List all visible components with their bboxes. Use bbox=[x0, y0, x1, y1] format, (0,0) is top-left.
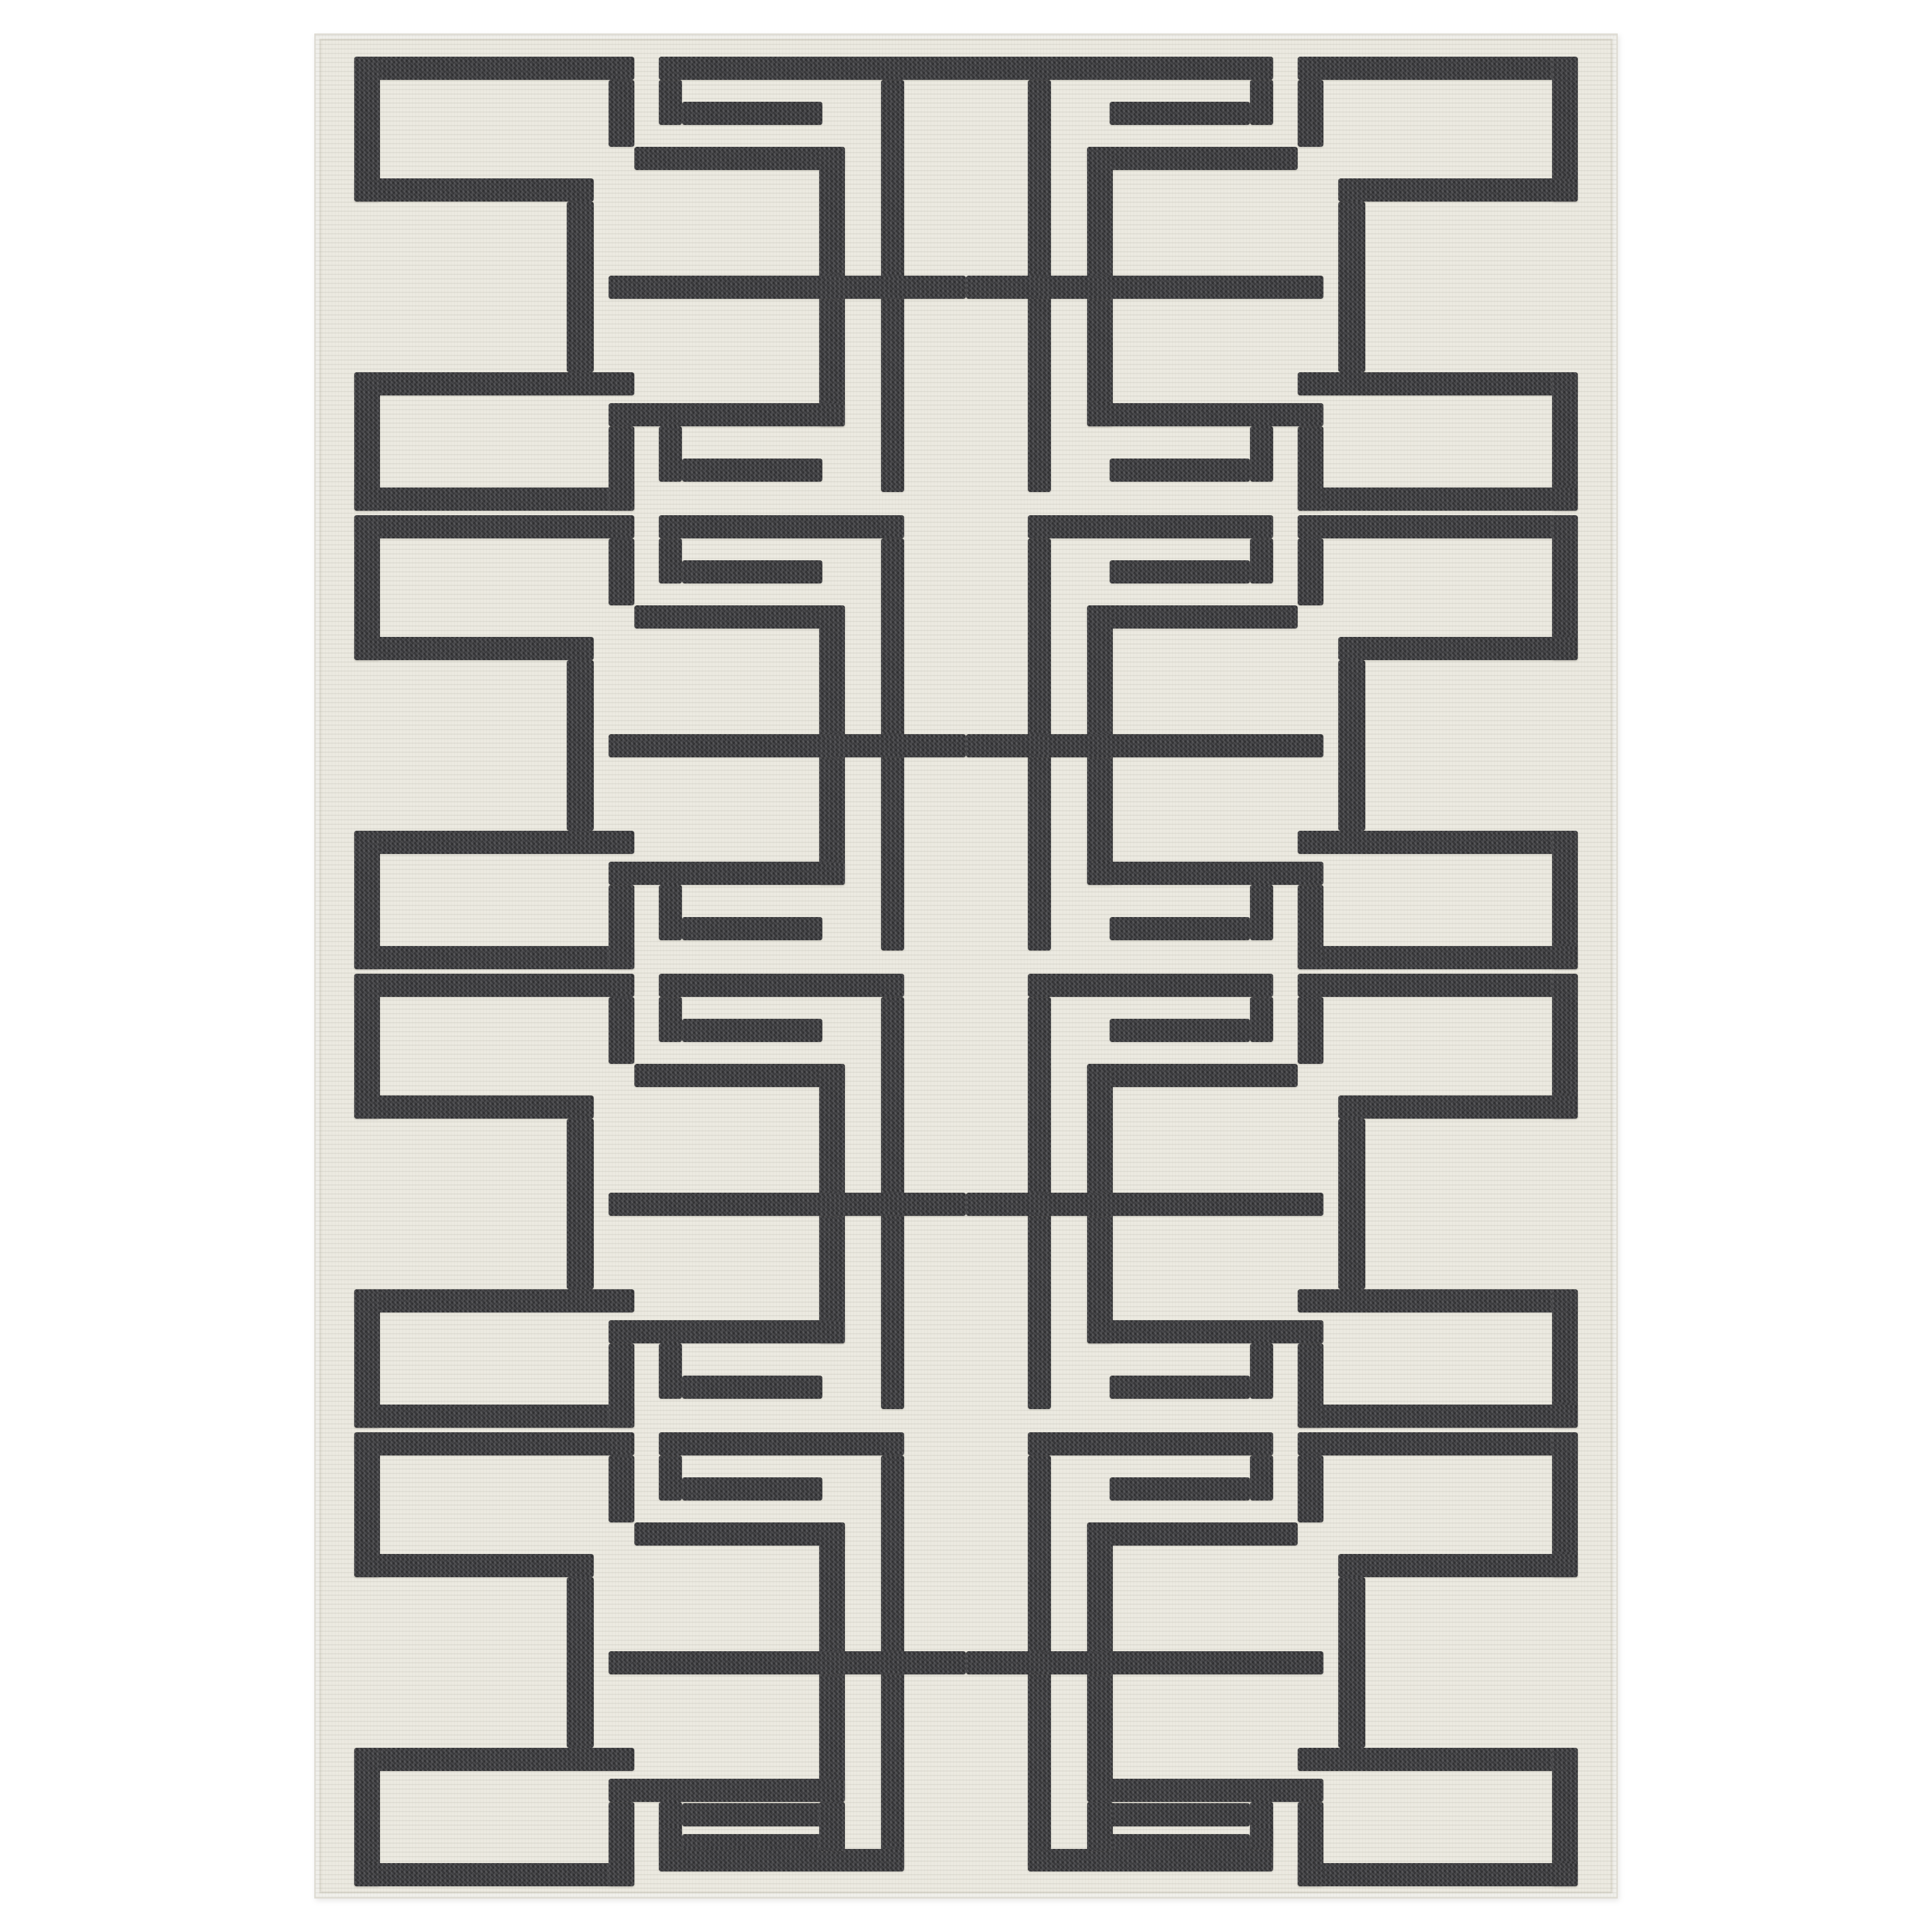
rug-pattern-top-hook-bar bbox=[682, 1477, 822, 1501]
rug-pattern-outer-rect-right-col bbox=[609, 80, 634, 147]
rug-pattern-top-hook-bar-mirror bbox=[1110, 102, 1250, 125]
rug-pattern-outer-rect-right-col bbox=[609, 538, 634, 605]
rug-pattern-corner-return-bar bbox=[609, 403, 845, 426]
rug-pattern-outer-rect-top-bar bbox=[354, 57, 634, 80]
rug-pattern-outer-rect-bottom-bar-mirror bbox=[1338, 178, 1578, 202]
rug-pattern-corner-return-bar-mirror bbox=[1087, 403, 1323, 426]
rug-pattern-lower-rect-bottom-bar-mirror bbox=[1298, 488, 1578, 511]
rug-pattern-top-hook-stub-mirror bbox=[1250, 997, 1273, 1042]
rug-pattern-bottom-up-hook-bar bbox=[682, 1803, 822, 1826]
rug-pattern-outer-rect-right-col-mirror bbox=[1298, 1455, 1323, 1522]
rug-pattern-corner-return-bar-mirror bbox=[1087, 862, 1323, 885]
rug-pattern-jog-bar bbox=[634, 605, 845, 629]
rug-pattern-corner-return-bar bbox=[609, 862, 845, 885]
rug-pattern-lower-rect-right-col bbox=[609, 885, 634, 969]
rug-pattern-outer-rect-top-bar-mirror bbox=[1298, 974, 1578, 997]
rug-pattern-lower-hook-bar bbox=[682, 917, 822, 940]
rug-pattern-outer-rect-bottom-bar bbox=[354, 178, 594, 202]
rug-pattern-top-hook-stub bbox=[659, 538, 682, 583]
rug-pattern-top-hook-stub-mirror bbox=[1250, 1455, 1273, 1501]
rug-pattern-mid-crossbar-mirror bbox=[966, 276, 1323, 299]
rug-pattern-outer-rect-bottom-bar bbox=[354, 1554, 594, 1577]
rug-pattern-lower-rect-right-col-mirror bbox=[1298, 1802, 1323, 1886]
rug-pattern-top-hook-bar-mirror bbox=[1110, 560, 1250, 583]
rug-pattern-drop-column-mirror bbox=[1338, 1119, 1365, 1289]
rug-pattern-outer-rect-top-bar bbox=[354, 974, 634, 997]
rug-pattern-jog-bar-mirror bbox=[1087, 1064, 1298, 1087]
rug-pattern-outer-rect-right-col bbox=[609, 997, 634, 1064]
rug-pattern-jog-bar-mirror bbox=[1087, 1522, 1298, 1546]
rug-pattern-lower-hook-stub-mirror bbox=[1250, 885, 1273, 940]
rug-pattern-lower-hook-bar-mirror bbox=[1110, 459, 1250, 482]
rug-pattern-drop-column bbox=[567, 1119, 594, 1289]
rug-pattern-lower-rect-top-bar bbox=[354, 372, 634, 395]
rug-pattern-lower-rect-top-bar bbox=[354, 1289, 634, 1312]
rug-pattern-inner-top-bar-mirror bbox=[1028, 1432, 1273, 1455]
rug-pattern-lower-rect-right-col-mirror bbox=[1298, 426, 1323, 511]
rug-pattern-drop-column-mirror bbox=[1338, 1577, 1365, 1748]
rug-pattern-outer-rect-bottom-bar-mirror bbox=[1338, 1554, 1578, 1577]
rug-pattern-lower-rect-bottom-bar-mirror bbox=[1298, 946, 1578, 969]
rug-pattern-drop-column bbox=[567, 1577, 594, 1748]
rug-pattern-bottom-va-extension bbox=[819, 1802, 845, 1851]
rug-pattern-outer-rect-right-col bbox=[609, 1455, 634, 1522]
rug-pattern-lower-hook-bar-mirror bbox=[1110, 917, 1250, 940]
rug-pattern-corner-return-bar bbox=[609, 1779, 845, 1802]
rug-pattern-bottom-up-hook-stub bbox=[659, 1826, 682, 1850]
rug-pattern-top-hook-bar bbox=[682, 560, 822, 583]
rug-pattern-drop-column-mirror bbox=[1338, 660, 1365, 831]
rug-pattern-lower-rect-top-bar bbox=[354, 831, 634, 854]
rug-pattern-lower-hook-bar bbox=[682, 459, 822, 482]
rug-pattern-lower-rect-bottom-bar bbox=[354, 946, 634, 969]
rug-pattern-lower-rect-right-col bbox=[609, 1343, 634, 1428]
rug-pattern-bottom-termination-bar-mirror bbox=[1028, 1849, 1273, 1871]
rug-pattern-inner-top-bar bbox=[659, 515, 904, 538]
rug-pattern-lower-rect-bottom-bar bbox=[354, 1405, 634, 1428]
rug-pattern-bottom-termination-bar bbox=[659, 1849, 904, 1871]
rug-pattern-corner-return-bar bbox=[609, 1320, 845, 1343]
rug-pattern-lower-hook-stub-mirror bbox=[1250, 1343, 1273, 1399]
rug-pattern-lower-hook-stub bbox=[659, 885, 682, 940]
rug-pattern-outer-rect-top-bar bbox=[354, 1432, 634, 1455]
rug-pattern-jog-bar bbox=[634, 147, 845, 170]
rug-pattern-top-hook-stub bbox=[659, 1455, 682, 1501]
rug-pattern-lower-hook-stub bbox=[659, 1343, 682, 1399]
rug-pattern-outer-rect-top-bar-mirror bbox=[1298, 515, 1578, 538]
rug-pattern-outer-rect-right-col-mirror bbox=[1298, 80, 1323, 147]
rug-pattern-bottom-up-hook-bar-mirror bbox=[1110, 1803, 1250, 1826]
rug-pattern-top-hook-bar bbox=[682, 102, 822, 125]
rug-pattern-lower-hook-bar bbox=[682, 1376, 822, 1399]
rug-pattern-outer-rect-bottom-bar bbox=[354, 1095, 594, 1119]
rug-pattern-jog-bar-mirror bbox=[1087, 147, 1298, 170]
rug-pattern-lower-rect-right-col-mirror bbox=[1298, 885, 1323, 969]
rug-pattern-lower-rect-bottom-bar-mirror bbox=[1298, 1863, 1578, 1886]
rug-pattern-outer-rect-bottom-bar-mirror bbox=[1338, 1095, 1578, 1119]
rug-pattern-drop-column-mirror bbox=[1338, 202, 1365, 372]
rug-pattern-lower-rect-right-col bbox=[609, 1802, 634, 1886]
rug-pattern-top-hook-stub-mirror bbox=[1250, 538, 1273, 583]
photo-background bbox=[0, 0, 1932, 1932]
rug-pattern-lower-rect-bottom-bar bbox=[354, 488, 634, 511]
rug-pattern-mid-crossbar-mirror bbox=[966, 1651, 1323, 1674]
rug-pattern-top-hook-stub bbox=[659, 80, 682, 125]
rug-pattern-lower-rect-top-bar-mirror bbox=[1298, 372, 1578, 395]
rug-pattern-inner-top-bar-mirror bbox=[1028, 974, 1273, 997]
rug-pattern-jog-bar bbox=[634, 1064, 845, 1087]
rug-pattern-jog-bar-mirror bbox=[1087, 605, 1298, 629]
rug-pattern-lower-rect-right-col bbox=[609, 426, 634, 511]
rug-pattern-top-edge-continuous-bar bbox=[659, 57, 1273, 80]
rug-pattern-mid-crossbar bbox=[609, 276, 966, 299]
rug-pattern-mid-crossbar-mirror bbox=[966, 734, 1323, 757]
rug-pattern-outer-rect-top-bar-mirror bbox=[1298, 1432, 1578, 1455]
rug-pattern-lower-rect-bottom-bar-mirror bbox=[1298, 1405, 1578, 1428]
rug-pattern-top-hook-stub-mirror bbox=[1250, 80, 1273, 125]
rug-pattern-outer-rect-top-bar bbox=[354, 515, 634, 538]
rug-pattern-lower-rect-top-bar-mirror bbox=[1298, 1289, 1578, 1312]
rug-pattern-bottom-va-extension-mirror bbox=[1087, 1802, 1113, 1851]
rug-pattern-bottom-up-hook-stub-mirror bbox=[1250, 1826, 1273, 1850]
rug-pattern-top-hook-bar-mirror bbox=[1110, 1019, 1250, 1042]
rug-pattern-mid-crossbar bbox=[609, 1651, 966, 1674]
rug-pattern-lower-hook-stub bbox=[659, 426, 682, 482]
rug-pattern-lower-rect-top-bar-mirror bbox=[1298, 831, 1578, 854]
rug-pattern-corner-return-bar-mirror bbox=[1087, 1320, 1323, 1343]
rug-pattern-outer-rect-right-col-mirror bbox=[1298, 997, 1323, 1064]
rug-pattern-lower-rect-top-bar-mirror bbox=[1298, 1748, 1578, 1771]
rug-pattern-outer-rect-top-bar-mirror bbox=[1298, 57, 1578, 80]
rug-pattern-outer-rect-bottom-bar-mirror bbox=[1338, 637, 1578, 660]
rug-pattern-lower-hook-bar-mirror bbox=[1110, 1376, 1250, 1399]
rug-pattern-drop-column bbox=[567, 202, 594, 372]
rug-pattern-top-hook-bar-mirror bbox=[1110, 1477, 1250, 1501]
rug-pattern-jog-bar bbox=[634, 1522, 845, 1546]
rug-pattern-lower-rect-top-bar bbox=[354, 1748, 634, 1771]
rug-pattern-top-hook-stub bbox=[659, 997, 682, 1042]
rug-pattern-outer-rect-right-col-mirror bbox=[1298, 538, 1323, 605]
rug-pattern-top-hook-bar bbox=[682, 1019, 822, 1042]
rug-pattern-lower-rect-bottom-bar bbox=[354, 1863, 634, 1886]
rug-pattern-outer-rect-bottom-bar bbox=[354, 637, 594, 660]
rug-pattern-drop-column bbox=[567, 660, 594, 831]
rug-pattern-mid-crossbar bbox=[609, 734, 966, 757]
rug-pattern-inner-top-bar-mirror bbox=[1028, 515, 1273, 538]
rug-pattern-corner-return-bar-mirror bbox=[1087, 1779, 1323, 1802]
rug-pattern-mid-crossbar-mirror bbox=[966, 1193, 1323, 1216]
rug-pattern-mid-crossbar bbox=[609, 1193, 966, 1216]
rug-pattern-inner-top-bar bbox=[659, 1432, 904, 1455]
rug-pattern-inner-top-bar bbox=[659, 974, 904, 997]
rug-pattern-lower-hook-stub-mirror bbox=[1250, 426, 1273, 482]
rug-pattern-lower-rect-right-col-mirror bbox=[1298, 1343, 1323, 1428]
